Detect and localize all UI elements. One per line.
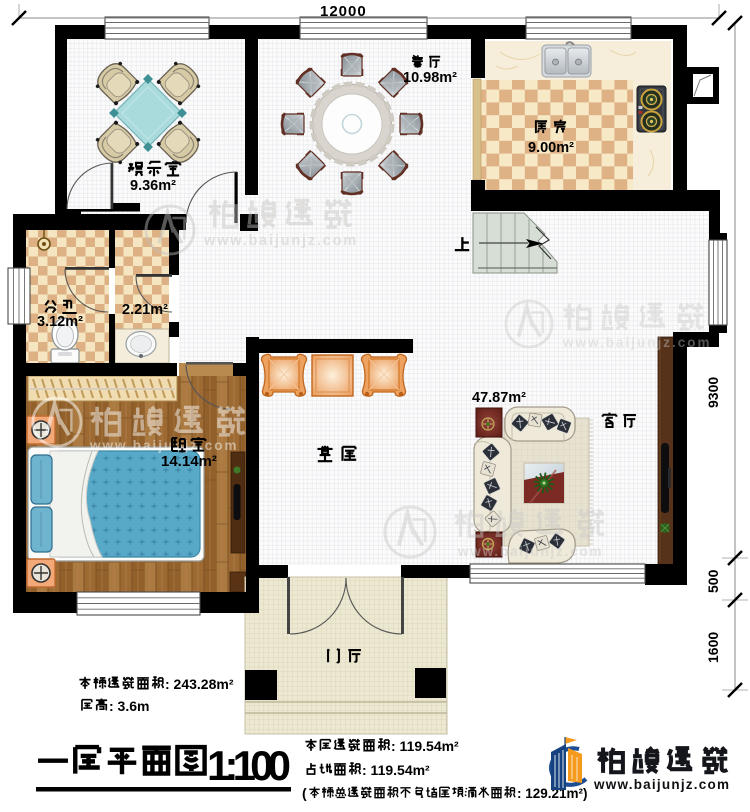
svg-text:10.98m²: 10.98m² bbox=[403, 70, 457, 86]
svg-text:3.12m²: 3.12m² bbox=[37, 314, 83, 330]
svg-text:9300: 9300 bbox=[705, 377, 721, 408]
svg-text:2.21m²: 2.21m² bbox=[122, 302, 168, 318]
svg-text:12000: 12000 bbox=[320, 3, 367, 20]
svg-text:www.baijunjz.com: www.baijunjz.com bbox=[89, 438, 239, 453]
svg-text:1600: 1600 bbox=[705, 632, 721, 663]
svg-text:www.baijunjz.com: www.baijunjz.com bbox=[562, 335, 712, 350]
svg-text:(: ( bbox=[302, 785, 307, 801]
svg-text:9.36m²: 9.36m² bbox=[130, 178, 176, 194]
svg-text:47.87m²: 47.87m² bbox=[472, 390, 526, 406]
svg-text:: 243.28m²: : 243.28m² bbox=[165, 676, 234, 692]
svg-text:: 3.6m: : 3.6m bbox=[109, 698, 149, 714]
svg-text:www.baijunjz.com: www.baijunjz.com bbox=[203, 233, 358, 249]
svg-text:www.baijunjz.com: www.baijunjz.com bbox=[593, 777, 730, 792]
svg-text:9.00m²: 9.00m² bbox=[528, 140, 574, 156]
svg-text:www.baijunjz.com: www.baijunjz.com bbox=[457, 544, 603, 559]
svg-text:500: 500 bbox=[705, 569, 721, 593]
svg-text:14.14m²: 14.14m² bbox=[161, 453, 217, 470]
svg-text:: 119.54m²: : 119.54m² bbox=[391, 738, 459, 754]
svg-text:1:100: 1:100 bbox=[207, 742, 291, 789]
svg-text:: 119.54m²: : 119.54m² bbox=[362, 762, 430, 778]
